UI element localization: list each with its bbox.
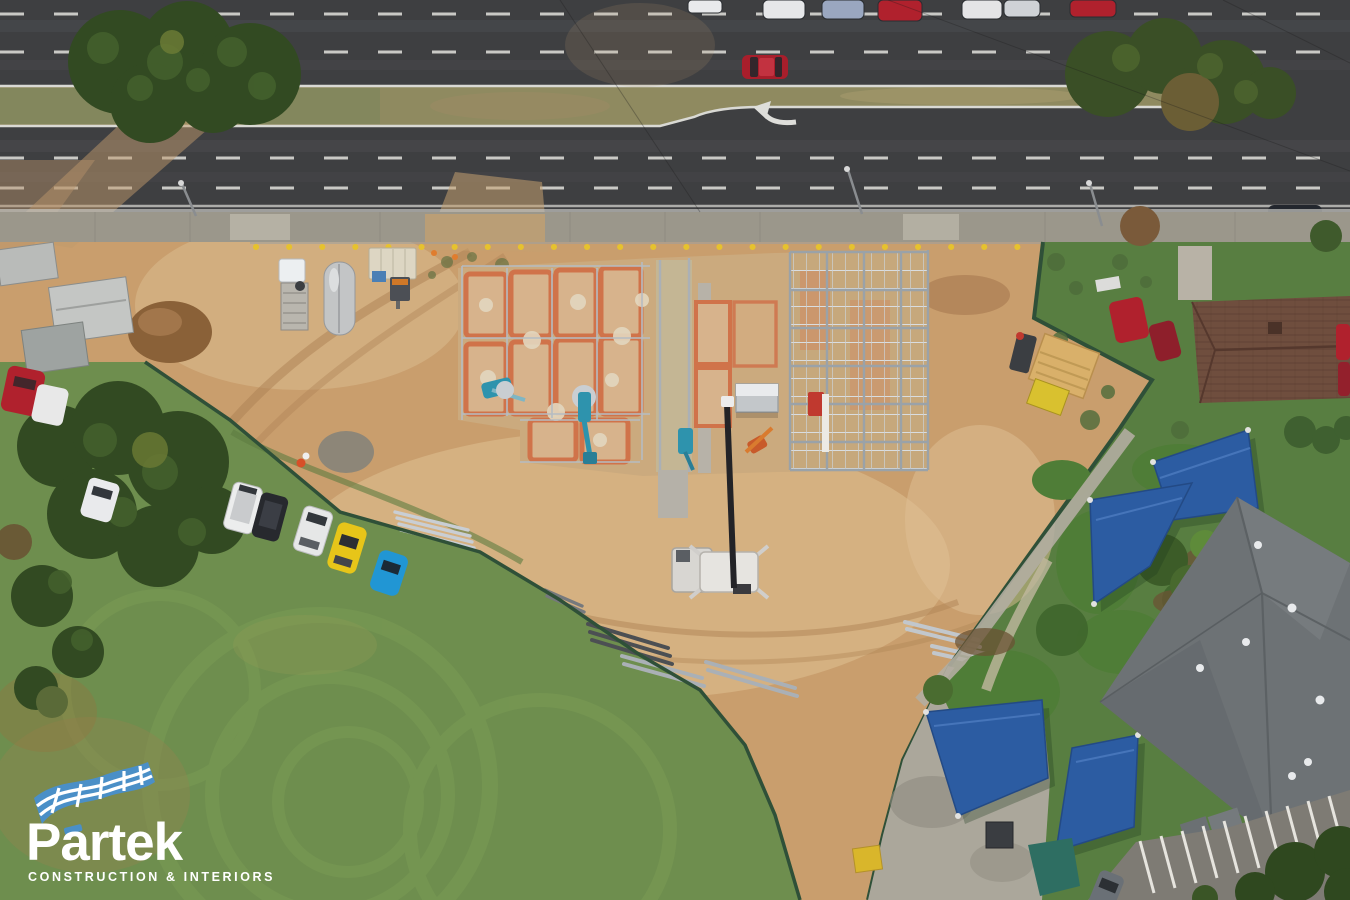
house-roof — [1192, 296, 1350, 403]
delivery-truck — [279, 259, 308, 330]
driveway — [1178, 246, 1212, 300]
waste-bin — [986, 822, 1013, 848]
gravel-pile — [318, 431, 374, 473]
tanker-trailer — [324, 262, 355, 335]
concrete-apron — [658, 470, 688, 518]
wear-band — [0, 140, 1350, 152]
spoil-mound-top — [138, 308, 182, 336]
plant-room-box — [736, 384, 778, 418]
crossing-pad — [903, 214, 959, 240]
parked-car-maroon-edge — [1338, 362, 1350, 396]
parked-car-grey — [1004, 0, 1040, 17]
worn-grass-patch — [233, 615, 377, 675]
shrub — [36, 686, 68, 718]
tree-highlight — [160, 30, 184, 54]
median-dirt — [840, 87, 1080, 105]
parked-car-white — [763, 0, 805, 19]
brand-name: Partek — [26, 813, 184, 872]
parked-car-white — [962, 0, 1002, 19]
moving-car-red — [742, 55, 788, 79]
roof-grid-section — [790, 250, 928, 470]
safety-cone — [452, 254, 458, 260]
safety-cone — [431, 250, 437, 256]
autumn-tree — [1161, 73, 1219, 131]
aerial-photograph: Partek CONSTRUCTION & INTERIORS — [0, 0, 1350, 900]
white-plank — [822, 394, 829, 452]
parked-car-red-edge — [1336, 324, 1350, 360]
parked-car-white — [688, 0, 722, 13]
roof-vent — [1268, 322, 1282, 334]
verge-shrub — [1310, 220, 1342, 252]
brand-tagline: CONSTRUCTION & INTERIORS — [28, 870, 275, 884]
blue-pallet — [372, 271, 386, 282]
parked-car-red — [1070, 0, 1116, 17]
crane-boom-head — [721, 396, 734, 407]
site-entrance-dirt — [425, 214, 545, 242]
crossing-pad — [230, 214, 290, 240]
red-equipment — [808, 392, 824, 416]
parked-car-silver — [822, 0, 864, 19]
median-dirt — [430, 92, 610, 120]
excavated-soil — [920, 275, 1010, 315]
skip-bin-yellow — [852, 845, 882, 873]
small-street-tree — [1120, 206, 1160, 246]
